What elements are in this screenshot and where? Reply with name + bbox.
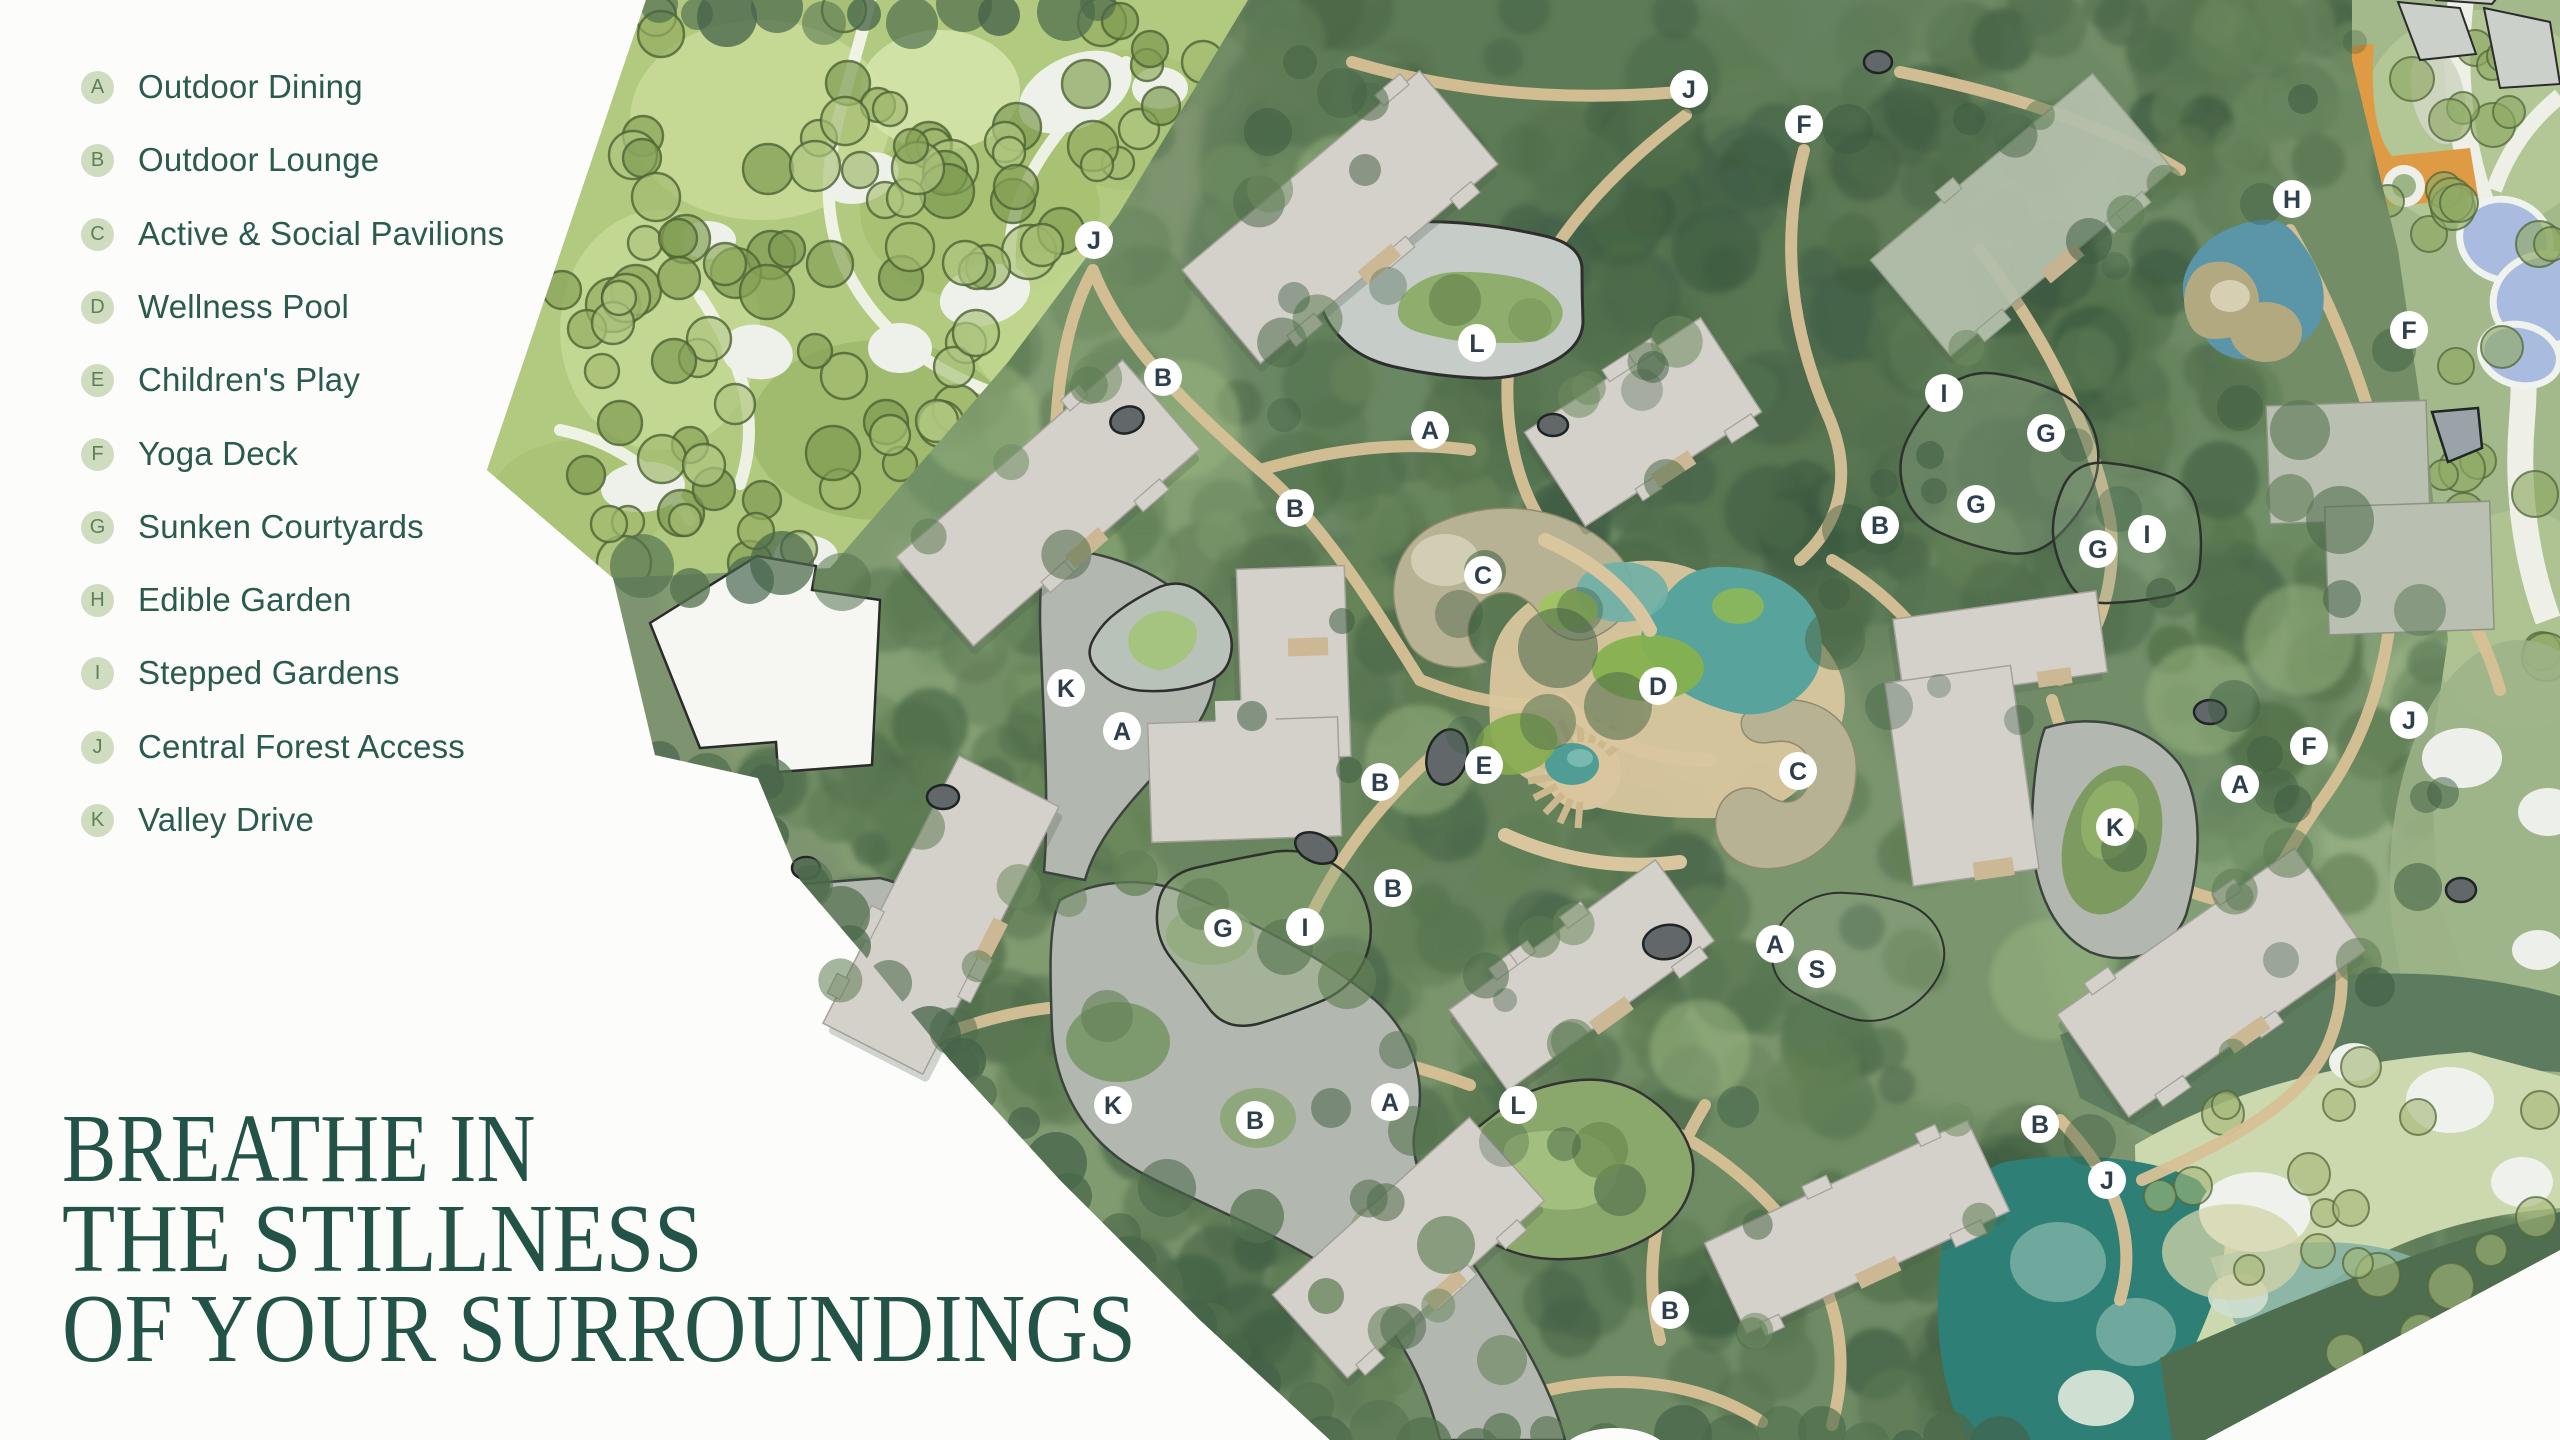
svg-text:B: B — [1871, 512, 1889, 540]
svg-text:E: E — [1476, 752, 1493, 780]
svg-text:J: J — [2402, 707, 2416, 735]
svg-text:F: F — [1796, 111, 1811, 139]
svg-text:B: B — [1154, 364, 1172, 392]
svg-text:A: A — [2231, 771, 2249, 799]
svg-text:D: D — [1649, 673, 1667, 701]
svg-text:B: B — [1286, 495, 1304, 523]
svg-text:G: G — [2036, 420, 2055, 448]
svg-text:B: B — [1661, 1297, 1679, 1325]
svg-text:G: G — [1213, 915, 1232, 943]
svg-text:A: A — [1381, 1089, 1399, 1117]
svg-text:A: A — [1421, 417, 1439, 445]
svg-text:H: H — [2283, 186, 2301, 214]
svg-text:F: F — [2401, 317, 2416, 345]
svg-text:J: J — [1087, 227, 1101, 255]
svg-text:G: G — [1966, 491, 1985, 519]
svg-text:I: I — [1941, 380, 1948, 408]
svg-text:K: K — [1057, 675, 1075, 703]
svg-text:L: L — [1469, 330, 1484, 358]
svg-text:F: F — [2301, 733, 2316, 761]
svg-text:J: J — [1682, 76, 1696, 104]
svg-text:B: B — [2031, 1111, 2049, 1139]
svg-text:A: A — [1113, 718, 1131, 746]
svg-text:K: K — [2106, 814, 2124, 842]
svg-text:C: C — [1789, 758, 1807, 786]
svg-text:A: A — [1766, 931, 1784, 959]
svg-text:L: L — [1510, 1092, 1525, 1120]
svg-text:G: G — [2088, 536, 2107, 564]
svg-text:I: I — [1302, 914, 1309, 942]
svg-text:J: J — [2100, 1167, 2114, 1195]
svg-text:S: S — [1809, 956, 1826, 984]
svg-text:B: B — [1371, 769, 1389, 797]
svg-text:C: C — [1474, 562, 1492, 590]
svg-text:B: B — [1384, 875, 1402, 903]
svg-text:I: I — [2144, 521, 2151, 549]
